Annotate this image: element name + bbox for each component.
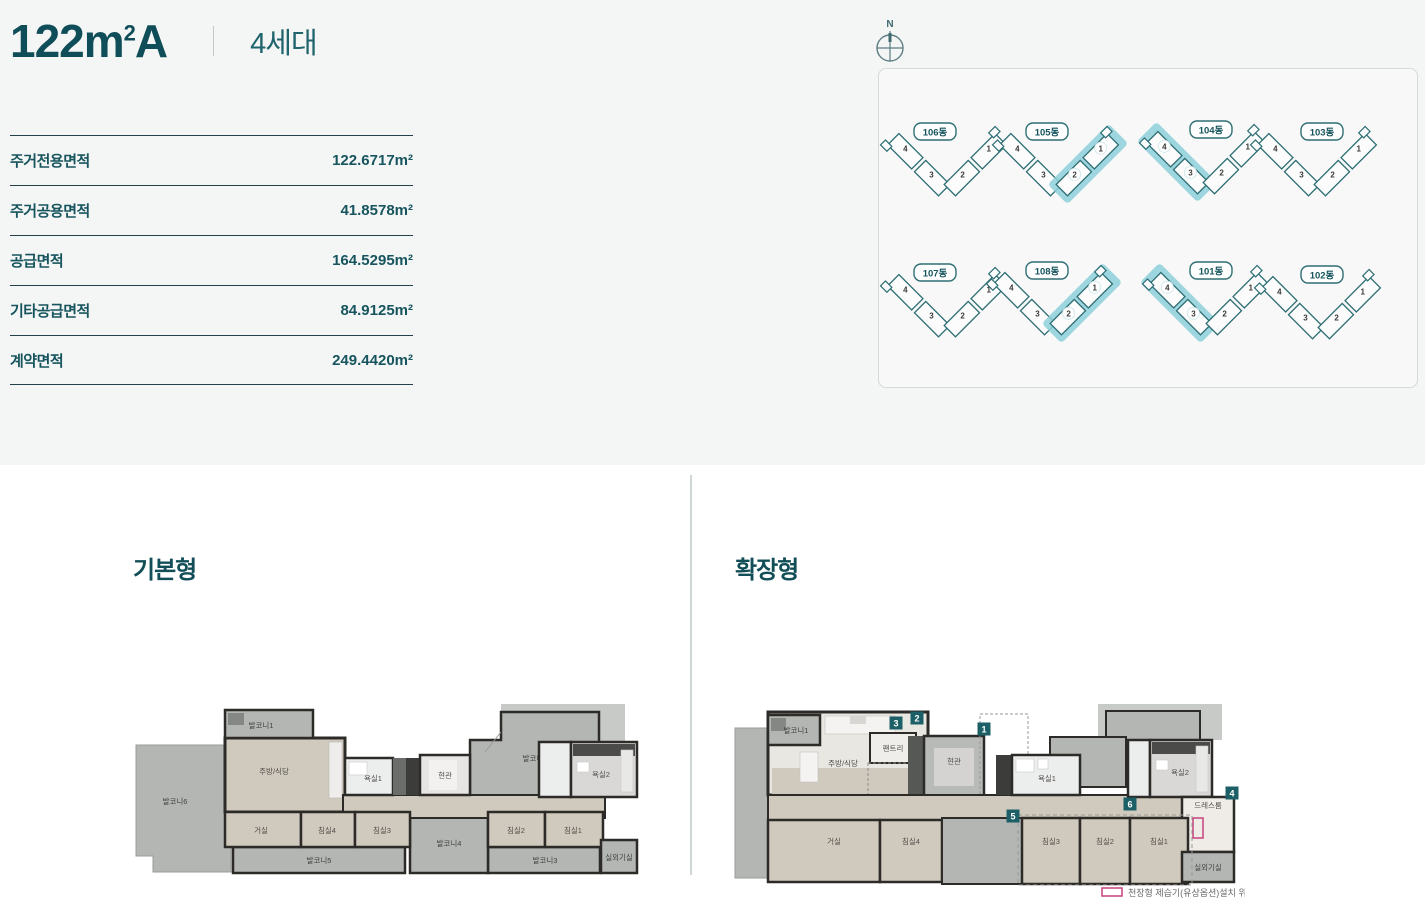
unit-number: 2 xyxy=(960,170,965,179)
svg-text:침실4: 침실4 xyxy=(902,836,920,846)
room-bed2: 침실2 xyxy=(488,812,545,847)
bathtub xyxy=(1196,746,1208,792)
room-balcony3: 발코니3 xyxy=(488,847,600,873)
svg-text:팬트리: 팬트리 xyxy=(883,744,904,753)
unit-number: 4 xyxy=(903,144,908,153)
table-row: 주거공용면적 41.8578m² xyxy=(10,185,413,235)
spec-label: 공급면적 xyxy=(10,250,63,271)
svg-text:발코니6: 발코니6 xyxy=(163,797,188,806)
site-building-1[interactable]: 3421106동 xyxy=(881,123,1010,199)
svg-text:6: 6 xyxy=(1127,800,1132,810)
room-dress: 드레스룸 xyxy=(1182,797,1234,852)
room-bed2: 침실2 xyxy=(1080,818,1130,884)
svg-text:주방/식당: 주방/식당 xyxy=(828,758,858,768)
area-spec-table: 주거전용면적 122.6717m² 주거공용면적 41.8578m² 공급면적 … xyxy=(10,135,413,385)
corridor xyxy=(768,795,1208,820)
svg-text:침실1: 침실1 xyxy=(1150,836,1168,846)
table-row: 계약면적 249.4420m² xyxy=(10,335,413,385)
table-row: 공급면적 164.5295m² xyxy=(10,235,413,285)
site-building-2[interactable]: 3421105동 xyxy=(993,123,1129,204)
site-building-5[interactable]: 3421107동 xyxy=(881,264,1010,340)
bathtub xyxy=(621,750,633,792)
unit-number: 2 xyxy=(1334,313,1339,322)
unit-number: 4 xyxy=(1009,283,1014,292)
svg-text:욕실1: 욕실1 xyxy=(1038,773,1056,783)
unit-number: 4 xyxy=(903,285,908,294)
unit-number: 1 xyxy=(1360,287,1365,296)
unit-number: 3 xyxy=(1188,168,1193,177)
unit-number: 4 xyxy=(1165,283,1170,292)
title-divider xyxy=(213,26,214,56)
fixture xyxy=(577,762,589,772)
spec-value: 249.4420m² xyxy=(332,352,413,369)
room-balcony1: 발코니1 xyxy=(225,710,313,738)
spec-value: 41.8578m² xyxy=(340,202,413,219)
unit-number: 1 xyxy=(986,144,991,153)
unit-number: 2 xyxy=(1072,170,1077,179)
room-bed1: 침실1 xyxy=(545,812,603,847)
room-balcony1: 발코니1 xyxy=(768,715,820,745)
stove xyxy=(850,716,866,724)
svg-text:실외기실: 실외기실 xyxy=(1194,862,1222,872)
svg-text:1: 1 xyxy=(981,725,986,735)
site-plan-box: 3421106동3421105동3421104동3421103동3421107동… xyxy=(878,68,1418,388)
extended-floor-plan: 주방/식당 발코니1 팬트리 현관 xyxy=(730,700,1245,900)
building-name: 101동 xyxy=(1199,267,1224,278)
svg-text:발코니1: 발코니1 xyxy=(784,726,809,735)
basic-plan-title: 기본형 xyxy=(133,550,196,585)
building-name: 103동 xyxy=(1310,128,1335,139)
svg-text:현관: 현관 xyxy=(438,770,452,780)
room-balcony4: 발코니4 xyxy=(410,812,488,873)
building-badge: 104동 xyxy=(1190,121,1232,138)
spec-label: 주거공용면적 xyxy=(10,200,90,221)
option-badge-2: 2 xyxy=(911,712,924,725)
unit-title-row: 122m2A 4세대 xyxy=(10,14,317,68)
building-name: 105동 xyxy=(1035,128,1060,139)
utility-room xyxy=(1128,740,1150,797)
spec-label: 계약면적 xyxy=(10,350,63,371)
svg-text:드레스룸: 드레스룸 xyxy=(1194,801,1222,810)
svg-text:침실4: 침실4 xyxy=(318,825,336,835)
closet xyxy=(393,758,406,795)
building-badge: 106동 xyxy=(914,123,956,140)
svg-text:욕실1: 욕실1 xyxy=(364,773,382,783)
room-living: 거실 xyxy=(768,820,880,882)
svg-text:5: 5 xyxy=(1010,812,1015,822)
legend-swatch xyxy=(1102,888,1122,896)
dehumidifier-legend: 천장형 제습기(유상옵션)설치 위치 xyxy=(1102,887,1245,898)
unit-number: 3 xyxy=(1191,309,1196,318)
unit-number: 3 xyxy=(1035,309,1040,318)
unit-number: 3 xyxy=(1041,170,1046,179)
fixture xyxy=(1038,759,1048,769)
room-bath2: 욕실2 xyxy=(571,742,637,797)
building-badge: 103동 xyxy=(1301,123,1343,140)
unit-number: 4 xyxy=(1162,142,1167,151)
spec-value: 164.5295m² xyxy=(332,252,413,269)
unit-info-section: 122m2A 4세대 주거전용면적 122.6717m² 주거공용면적 41.8… xyxy=(0,0,1425,465)
svg-text:발코니1: 발코니1 xyxy=(249,721,274,730)
room-bed3: 침실3 xyxy=(1022,818,1080,884)
building-name: 106동 xyxy=(923,128,948,139)
unit-number: 1 xyxy=(1248,283,1253,292)
site-building-8[interactable]: 3421102동 xyxy=(1255,266,1384,342)
svg-text:4: 4 xyxy=(1229,789,1234,799)
option-badge-5: 5 xyxy=(1007,810,1020,823)
svg-text:침실3: 침실3 xyxy=(373,825,391,835)
svg-text:발코니3: 발코니3 xyxy=(533,856,558,865)
table-row: 기타공급면적 84.9125m² xyxy=(10,285,413,335)
site-building-3[interactable]: 3421104동 xyxy=(1137,121,1269,202)
svg-text:주방/식당: 주방/식당 xyxy=(259,766,289,776)
unit-number: 3 xyxy=(929,170,934,179)
unit-number: 1 xyxy=(1098,144,1103,153)
room-outdoor-unit: 실외기실 xyxy=(601,840,637,873)
unit-number: 3 xyxy=(1303,313,1308,322)
room-bed1: 침실1 xyxy=(1130,818,1188,884)
center-bottom-gray-area xyxy=(942,818,1022,884)
svg-text:침실1: 침실1 xyxy=(564,825,582,835)
entry-floor xyxy=(934,748,974,786)
utility-room xyxy=(539,742,571,797)
room-living: 거실 xyxy=(225,812,301,847)
unit-number: 2 xyxy=(1330,170,1335,179)
room-bath1: 욕실1 xyxy=(345,758,393,795)
svg-text:욕실2: 욕실2 xyxy=(1171,767,1189,777)
floor-plan-section: 기본형 확장형 발코니6 발코니5 발코니3 발코니 xyxy=(0,465,1425,909)
closet xyxy=(908,736,924,796)
fixture xyxy=(1156,760,1168,770)
site-building-7[interactable]: 3421101동 xyxy=(1140,262,1272,343)
room-entrance: 현관 xyxy=(924,736,984,796)
svg-text:거실: 거실 xyxy=(254,825,268,835)
table-row: 주거전용면적 122.6717m² xyxy=(10,135,413,185)
legend-label: 천장형 제습기(유상옵션)설치 위치 xyxy=(1128,887,1245,898)
svg-text:거실: 거실 xyxy=(827,836,841,846)
svg-text:2: 2 xyxy=(914,714,919,724)
building-name: 102동 xyxy=(1310,271,1335,282)
svg-text:침실2: 침실2 xyxy=(507,825,525,835)
svg-text:현관: 현관 xyxy=(947,756,961,766)
unit-number: 3 xyxy=(929,311,934,320)
cabinet xyxy=(329,742,342,798)
option-badge-1: 1 xyxy=(978,723,991,736)
unit-number: 1 xyxy=(1092,283,1097,292)
closet xyxy=(406,758,420,795)
island xyxy=(800,752,818,782)
dining-floor xyxy=(772,768,926,795)
page: 122m2A 4세대 주거전용면적 122.6717m² 주거공용면적 41.8… xyxy=(0,0,1425,909)
spec-label: 주거전용면적 xyxy=(10,150,90,171)
option-badge-3: 3 xyxy=(890,717,903,730)
room-bath1: 욕실1 xyxy=(1012,755,1080,795)
page-title: 122m2A xyxy=(10,14,167,68)
unit-number: 2 xyxy=(960,311,965,320)
spec-value: 84.9125m² xyxy=(340,302,413,319)
building-badge: 101동 xyxy=(1190,262,1232,279)
room-outdoor-unit: 실외기실 xyxy=(1182,852,1234,882)
room-bed4: 침실4 xyxy=(301,812,355,847)
building-name: 104동 xyxy=(1199,126,1224,137)
unit-number: 2 xyxy=(1222,309,1227,318)
site-plan: 3421106동3421105동3421104동3421103동3421107동… xyxy=(879,69,1417,387)
closet xyxy=(996,755,1012,795)
room-balcony6: 발코니6 xyxy=(136,745,231,872)
unit-number: 2 xyxy=(1219,168,1224,177)
unit-number: 4 xyxy=(1015,144,1020,153)
unit-number: 4 xyxy=(1277,287,1282,296)
unit-number: 1 xyxy=(1245,142,1250,151)
extended-plan-title: 확장형 xyxy=(735,550,798,585)
building-badge: 107동 xyxy=(914,264,956,281)
spec-label: 기타공급면적 xyxy=(10,300,90,321)
svg-text:3: 3 xyxy=(893,719,898,729)
spec-value: 122.6717m² xyxy=(332,152,413,169)
room-bed3: 침실3 xyxy=(355,812,410,847)
compass-icon: N xyxy=(866,16,914,68)
building-badge: 102동 xyxy=(1301,266,1343,283)
svg-text:침실2: 침실2 xyxy=(1096,836,1114,846)
svg-text:발코니5: 발코니5 xyxy=(307,856,332,865)
basic-floor-plan: 발코니6 발코니5 발코니3 발코니4 발코니2 xyxy=(133,700,643,885)
room-bed4: 침실4 xyxy=(880,820,942,882)
svg-text:실외기실: 실외기실 xyxy=(605,852,633,862)
unit-number: 2 xyxy=(1066,309,1071,318)
svg-text:발코니4: 발코니4 xyxy=(437,839,462,848)
site-building-6[interactable]: 3421108동 xyxy=(987,262,1123,343)
building-name: 108동 xyxy=(1035,267,1060,278)
room-balcony5: 발코니5 xyxy=(233,847,405,873)
panel-divider xyxy=(690,475,692,875)
svg-text:욕실2: 욕실2 xyxy=(592,769,610,779)
option-badge-4: 4 xyxy=(1226,787,1239,800)
site-building-4[interactable]: 3421103동 xyxy=(1251,123,1380,199)
compass-north-label: N xyxy=(886,19,893,30)
building-name: 107동 xyxy=(923,269,948,280)
svg-text:침실3: 침실3 xyxy=(1042,836,1060,846)
unit-number: 3 xyxy=(1299,170,1304,179)
fixture xyxy=(1016,759,1034,772)
unit-number: 1 xyxy=(1356,144,1361,153)
room-kitchen: 주방/식당 xyxy=(225,738,345,812)
room-bath2: 욕실2 xyxy=(1150,740,1212,797)
unit-number: 4 xyxy=(1273,144,1278,153)
building-badge: 105동 xyxy=(1026,123,1068,140)
closet xyxy=(228,713,244,725)
household-count: 4세대 xyxy=(250,20,317,62)
building-badge: 108동 xyxy=(1026,262,1068,279)
option-badge-6: 6 xyxy=(1124,798,1137,811)
